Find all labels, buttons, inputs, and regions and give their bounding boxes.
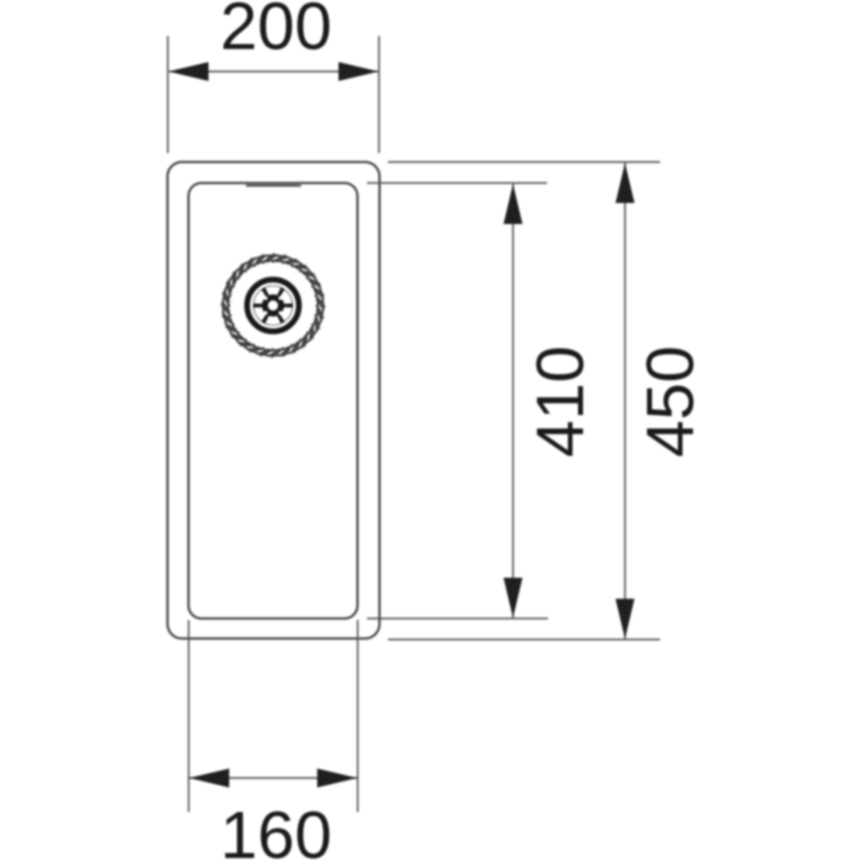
svg-text:200: 200: [220, 0, 332, 64]
svg-text:160: 160: [220, 798, 332, 860]
svg-text:450: 450: [633, 346, 708, 458]
svg-text:410: 410: [523, 346, 598, 458]
